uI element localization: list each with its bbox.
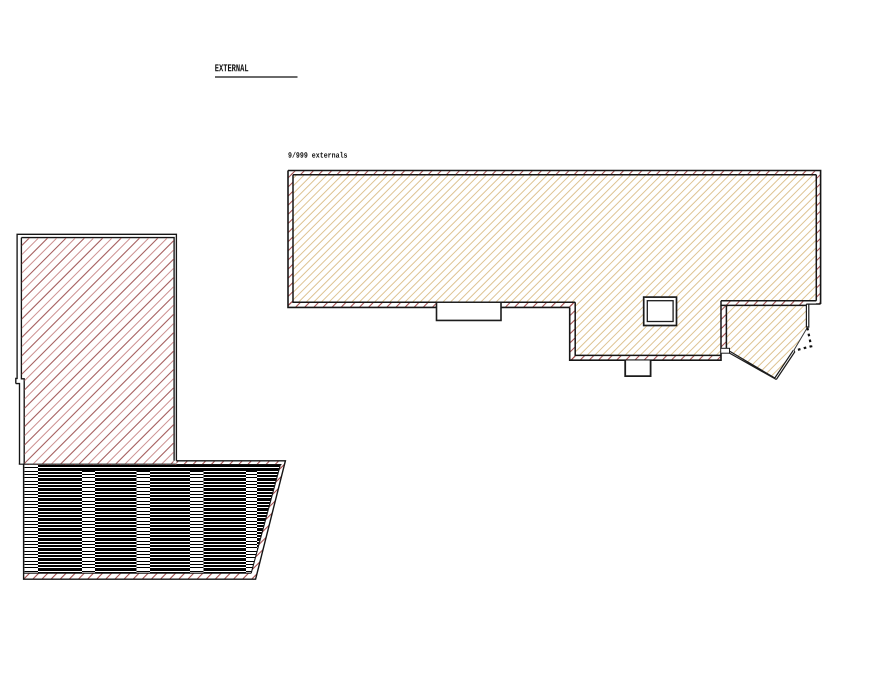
- svg-text:9/999 externals: 9/999 externals: [288, 152, 348, 161]
- svg-text:EXTERNAL: EXTERNAL: [215, 63, 249, 75]
